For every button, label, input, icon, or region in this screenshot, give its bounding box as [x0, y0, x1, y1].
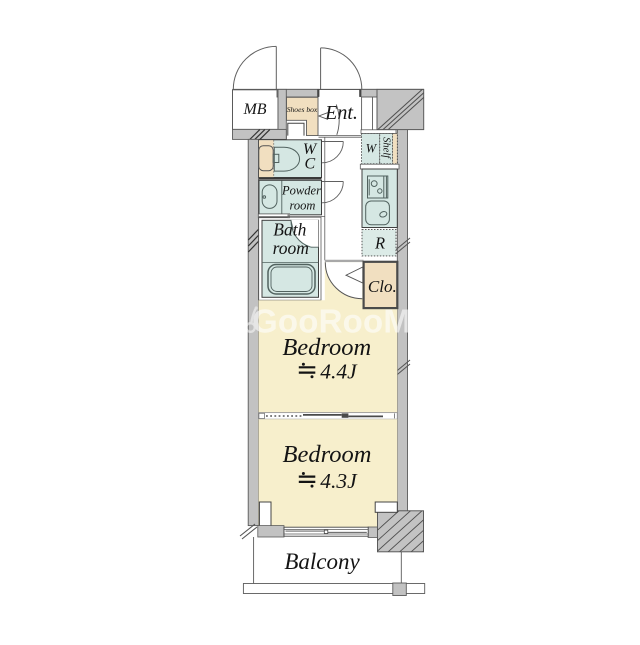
svg-text:R: R	[374, 233, 385, 252]
svg-text:Shoes box: Shoes box	[287, 105, 318, 114]
svg-text:Balcony: Balcony	[284, 549, 360, 574]
svg-text:Ent.: Ent.	[324, 102, 358, 124]
svg-text:MB: MB	[242, 101, 266, 118]
svg-text:Bath: Bath	[273, 220, 306, 240]
svg-text:C: C	[304, 155, 315, 172]
svg-text:4.3J: 4.3J	[320, 469, 358, 493]
svg-text:room: room	[273, 238, 309, 258]
svg-text:W: W	[366, 142, 378, 156]
svg-text:room: room	[290, 198, 316, 212]
svg-text:Powder: Powder	[281, 184, 321, 198]
svg-text:4.4J: 4.4J	[320, 360, 358, 384]
svg-text:Shelf: Shelf	[381, 137, 392, 160]
svg-text:Clo.: Clo.	[368, 277, 397, 296]
svg-text:Bedroom: Bedroom	[283, 441, 372, 468]
svg-text:GooRooM: GooRooM	[252, 303, 411, 340]
